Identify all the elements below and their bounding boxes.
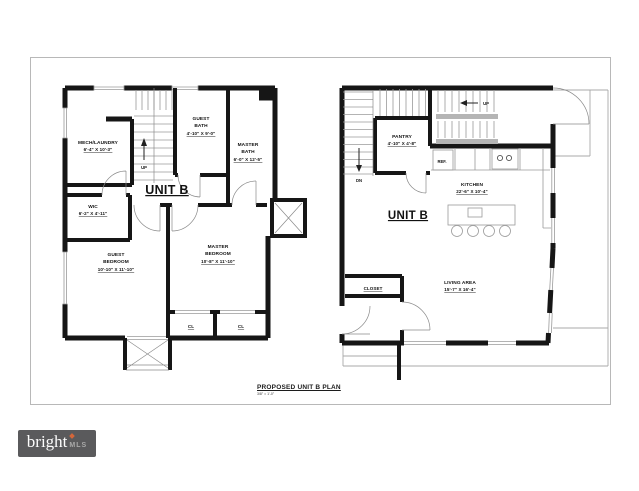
room-dims-wic: 6'-2" X 4'-11"	[79, 211, 108, 216]
room-label-guest-bath-1: GUEST	[192, 116, 209, 122]
room-label-guest-bath-2: BATH	[194, 123, 208, 129]
shaft-right	[272, 200, 305, 236]
up-arrow-icon	[141, 138, 147, 146]
room-label-wic: WIC	[88, 204, 98, 210]
logo-spark-icon	[69, 433, 75, 439]
title-block: PROPOSED UNIT B PLAN 3/8" = 1'-0"	[257, 384, 341, 396]
unit-label-upper: UNIT B	[145, 183, 188, 197]
up-arrow-icon	[460, 100, 467, 106]
kitchen-counter	[431, 148, 551, 228]
sink-icon	[468, 208, 482, 217]
upper-floor-plan: UP MECH/LAUNDRY 6'-4" X 10'-3" GUEST BAT…	[60, 80, 310, 380]
room-dims-pantry: 4'-10" X 4'-8"	[388, 141, 417, 146]
room-dims-living-area: 15'-7" X 16'-4"	[444, 287, 475, 292]
down-arrow-icon	[356, 165, 362, 172]
stool-icon	[452, 226, 463, 237]
room-dims-guest-bath: 4'-10" X 9'-0"	[187, 131, 216, 136]
room-label-master-bath-1: MASTER	[238, 142, 259, 148]
room-label-master-bedroom-2: BEDROOM	[205, 251, 231, 257]
stair-up-label: UP	[141, 165, 147, 170]
bright-mls-watermark: bright MLS	[18, 430, 96, 457]
closet-label-1: CL	[188, 324, 194, 329]
room-dims-kitchen: 22'-6" X 10'-4"	[456, 189, 487, 194]
unit-label-main: UNIT B	[388, 210, 428, 222]
room-label-pantry: PANTRY	[392, 134, 412, 140]
bright-mls-logo-suffix: MLS	[69, 442, 87, 449]
stair-up-label: UP	[483, 101, 489, 106]
deck-outline	[343, 90, 608, 366]
room-label-guest-bedroom-1: GUEST	[107, 252, 124, 258]
stairs-up: UP	[436, 90, 498, 144]
room-label-kitchen: KITCHEN	[461, 182, 483, 188]
plan-title: PROPOSED UNIT B PLAN	[257, 384, 341, 391]
ref-label: REF.	[437, 159, 446, 164]
windows	[404, 168, 555, 345]
cooktop-burner-icon	[497, 155, 502, 160]
door-swings	[102, 171, 256, 231]
interior-walls	[345, 88, 553, 380]
plan-scale: 3/8" = 1'-0"	[257, 392, 341, 396]
main-floor-plan: DN UP PANTRY 4'-10" X 4'-8"	[330, 78, 630, 388]
cooktop-burner-icon	[506, 155, 511, 160]
shaft-bottom-bay	[125, 338, 170, 370]
stool-icon	[468, 226, 479, 237]
stool-icon	[484, 226, 495, 237]
room-label-master-bedroom-1: MASTER	[208, 244, 229, 250]
room-label-living-area: LIVING AREA	[444, 280, 476, 286]
room-label-mech-laundry: MECH/LAUNDRY	[78, 140, 119, 146]
closet-label-2: CL	[238, 324, 244, 329]
mls-floorplan-photo: { "title_block": { "title": "PROPOSED UN…	[0, 0, 639, 491]
stool-icon	[500, 226, 511, 237]
room-label-closet: CLOSET	[364, 286, 383, 291]
room-labels: PANTRY 4'-10" X 4'-8" REF. KITCHEN 22'-6…	[364, 134, 488, 292]
stair-dn-label: DN	[356, 178, 362, 183]
room-dims-mech-laundry: 6'-4" X 10'-3"	[84, 147, 113, 152]
room-label-guest-bedroom-2: BEDROOM	[103, 259, 129, 265]
room-dims-master-bedroom: 10'-8" X 11'-10"	[201, 259, 235, 264]
kitchen-island	[448, 205, 515, 237]
room-dims-master-bath: 6'-0" X 12'-5"	[234, 157, 263, 162]
bright-mls-logo-text: bright	[27, 433, 68, 450]
stairs-down: DN	[343, 89, 426, 183]
room-dims-guest-bedroom: 10'-10" X 11'-10"	[98, 267, 134, 272]
room-label-master-bath-2: BATH	[241, 149, 255, 155]
stairs-up: UP	[134, 88, 173, 183]
